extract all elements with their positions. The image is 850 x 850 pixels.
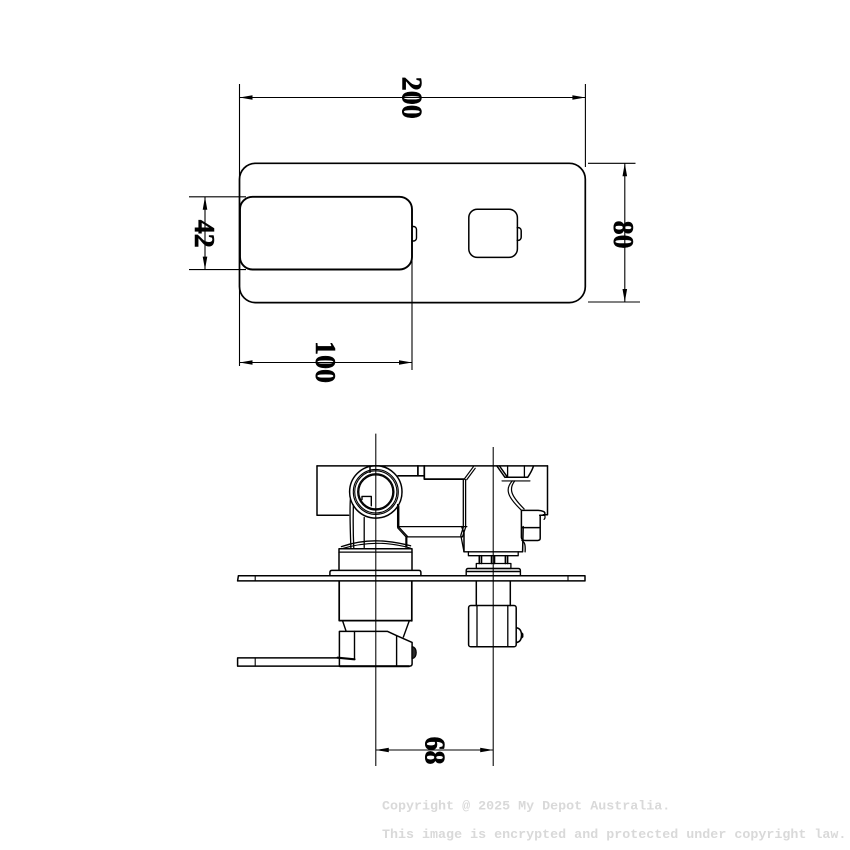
svg-text:100: 100 (309, 341, 340, 383)
svg-text:Copyright @ 2025 My Depot Aust: Copyright @ 2025 My Depot Australia. (382, 800, 670, 815)
svg-text:68: 68 (418, 737, 449, 765)
svg-text:This image is encrypted and pr: This image is encrypted and protected un… (382, 828, 846, 843)
svg-text:80: 80 (607, 221, 638, 249)
svg-text:42: 42 (188, 220, 219, 248)
svg-text:200: 200 (396, 77, 427, 119)
